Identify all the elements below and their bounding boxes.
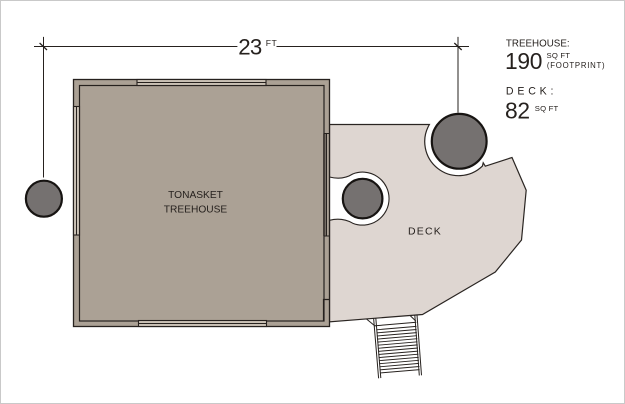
svg-text:TREEHOUSE: TREEHOUSE: [164, 205, 228, 216]
svg-text:SQ FT: SQ FT: [547, 51, 571, 60]
svg-text:DECK: DECK: [408, 226, 442, 238]
svg-text:SQ FT: SQ FT: [535, 104, 559, 113]
svg-text:TONASKET: TONASKET: [168, 190, 223, 201]
svg-text:(FOOTPRINT): (FOOTPRINT): [547, 61, 606, 70]
svg-text:FT: FT: [266, 38, 278, 48]
svg-text:190: 190: [505, 48, 542, 74]
svg-text:DECK:: DECK:: [506, 86, 557, 98]
svg-text:82: 82: [505, 98, 530, 124]
svg-text:23: 23: [238, 35, 262, 60]
